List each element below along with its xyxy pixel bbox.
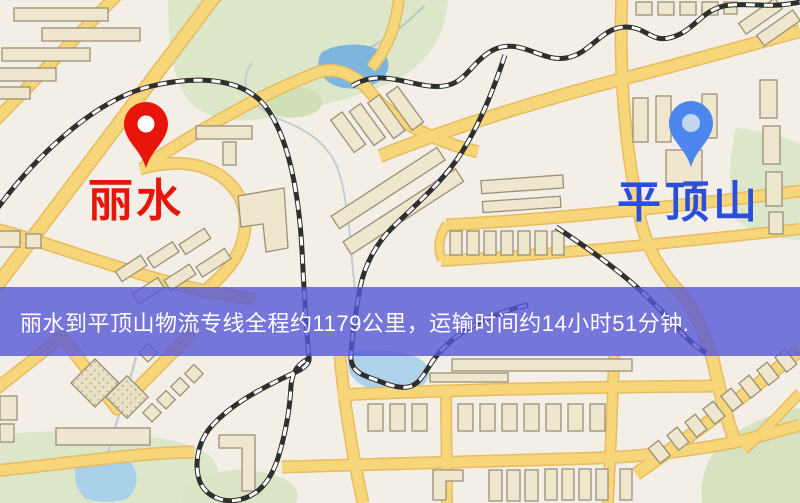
origin-city-label: 丽水 — [88, 178, 184, 223]
map-graphic — [0, 0, 800, 503]
lishui-pingdingshan-route-map: 丽水 平顶山 丽水到平顶山物流专线全程约1179公里，运输时间约14小时51分钟… — [0, 0, 800, 503]
destination-pin-hole — [682, 114, 700, 132]
origin-pin-hole — [138, 116, 155, 133]
route-info-text: 丽水到平顶山物流专线全程约1179公里，运输时间约14小时51分钟. — [0, 306, 689, 338]
route-info-banner: 丽水到平顶山物流专线全程约1179公里，运输时间约14小时51分钟. — [0, 287, 800, 356]
destination-city-label: 平顶山 — [617, 181, 761, 225]
